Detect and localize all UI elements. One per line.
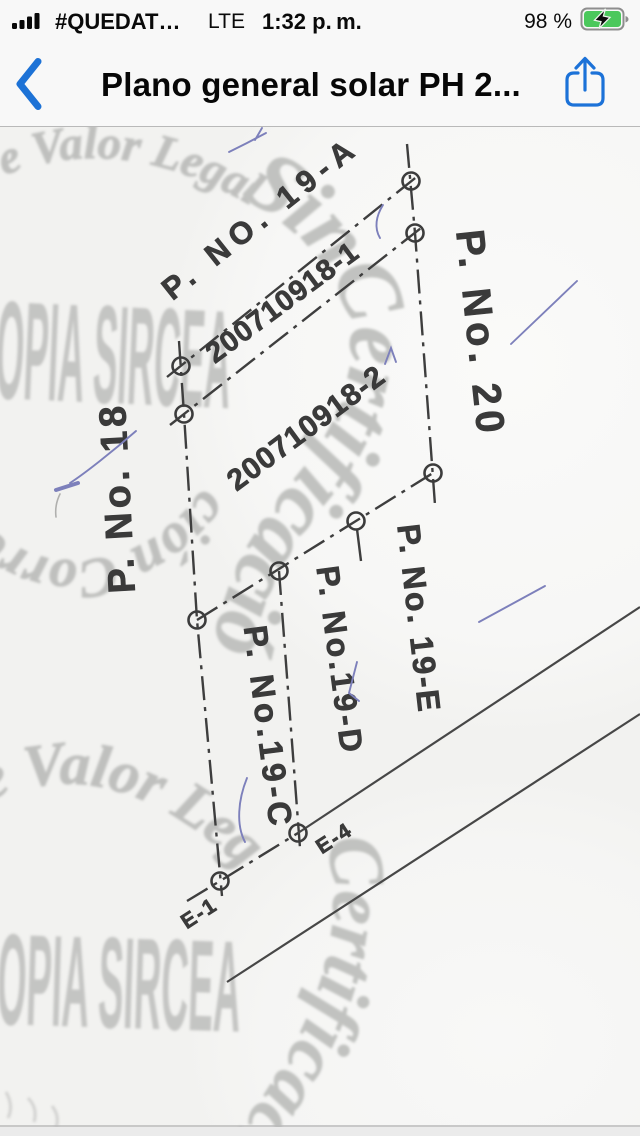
svg-text:OPIA SIRCEA: OPIA SIRCEA bbox=[0, 907, 243, 1060]
